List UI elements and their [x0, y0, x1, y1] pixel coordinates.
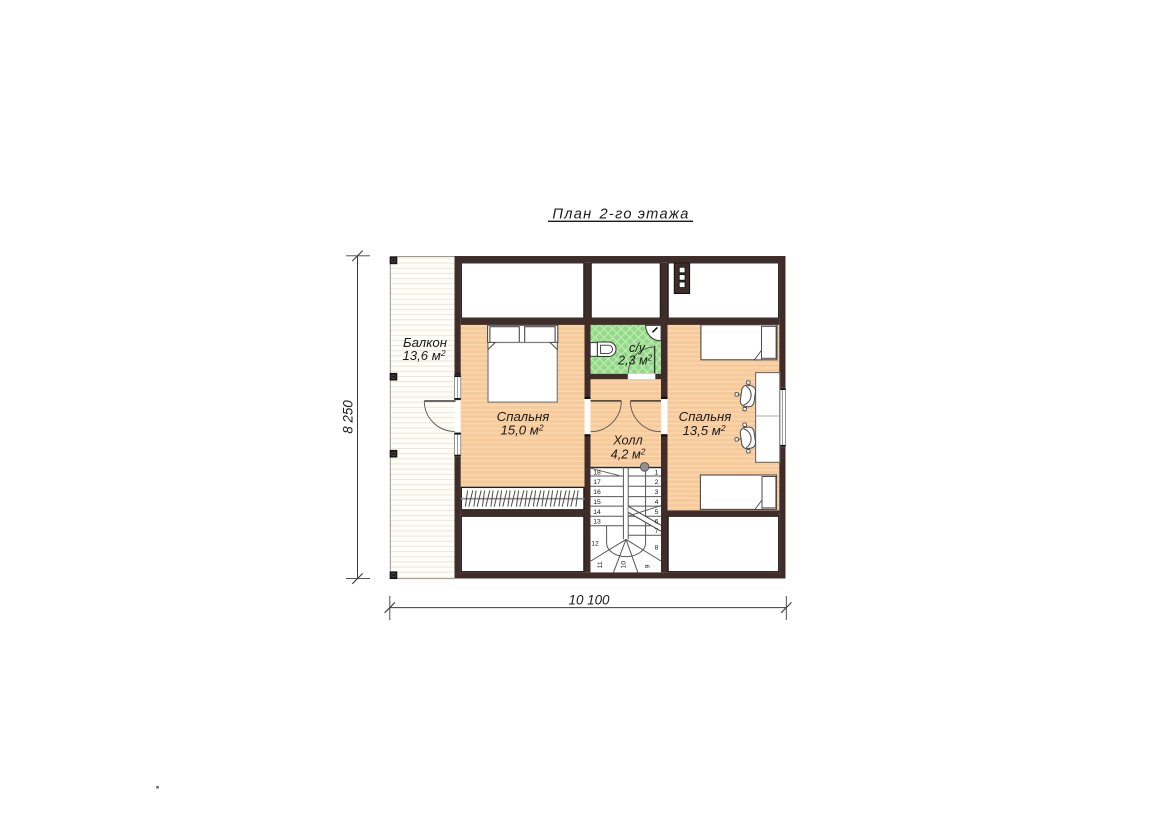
- svg-text:10: 10: [621, 561, 628, 569]
- svg-text:2: 2: [655, 479, 659, 486]
- svg-text:13,6 м2: 13,6 м2: [402, 348, 445, 363]
- svg-text:13: 13: [593, 518, 601, 525]
- svg-text:1: 1: [655, 469, 659, 476]
- svg-text:14: 14: [593, 509, 601, 516]
- svg-text:План2-гоэтажа: План2-гоэтажа: [552, 207, 689, 223]
- svg-text:10 100: 10 100: [569, 593, 611, 608]
- svg-text:Спальня: Спальня: [679, 409, 732, 424]
- svg-text:4: 4: [655, 499, 659, 506]
- svg-text:8: 8: [655, 545, 659, 552]
- svg-text:9: 9: [645, 564, 652, 568]
- svg-text:11: 11: [597, 561, 604, 568]
- svg-text:2,3 м2: 2,3 м2: [617, 354, 653, 368]
- svg-text:4,2 м2: 4,2 м2: [611, 446, 646, 461]
- svg-text:18: 18: [593, 469, 601, 476]
- svg-text:Холл: Холл: [612, 432, 643, 447]
- svg-text:17: 17: [593, 479, 601, 486]
- svg-text:15,0 м2: 15,0 м2: [500, 423, 543, 438]
- svg-text:13,5 м2: 13,5 м2: [682, 423, 725, 438]
- svg-text:6: 6: [655, 518, 659, 525]
- svg-text:3: 3: [655, 489, 659, 496]
- svg-text:7: 7: [655, 528, 659, 535]
- svg-text:12: 12: [591, 541, 599, 548]
- svg-text:16: 16: [593, 489, 601, 496]
- svg-text:8 250: 8 250: [341, 400, 356, 434]
- svg-text:5: 5: [655, 509, 659, 516]
- svg-text:15: 15: [593, 499, 601, 506]
